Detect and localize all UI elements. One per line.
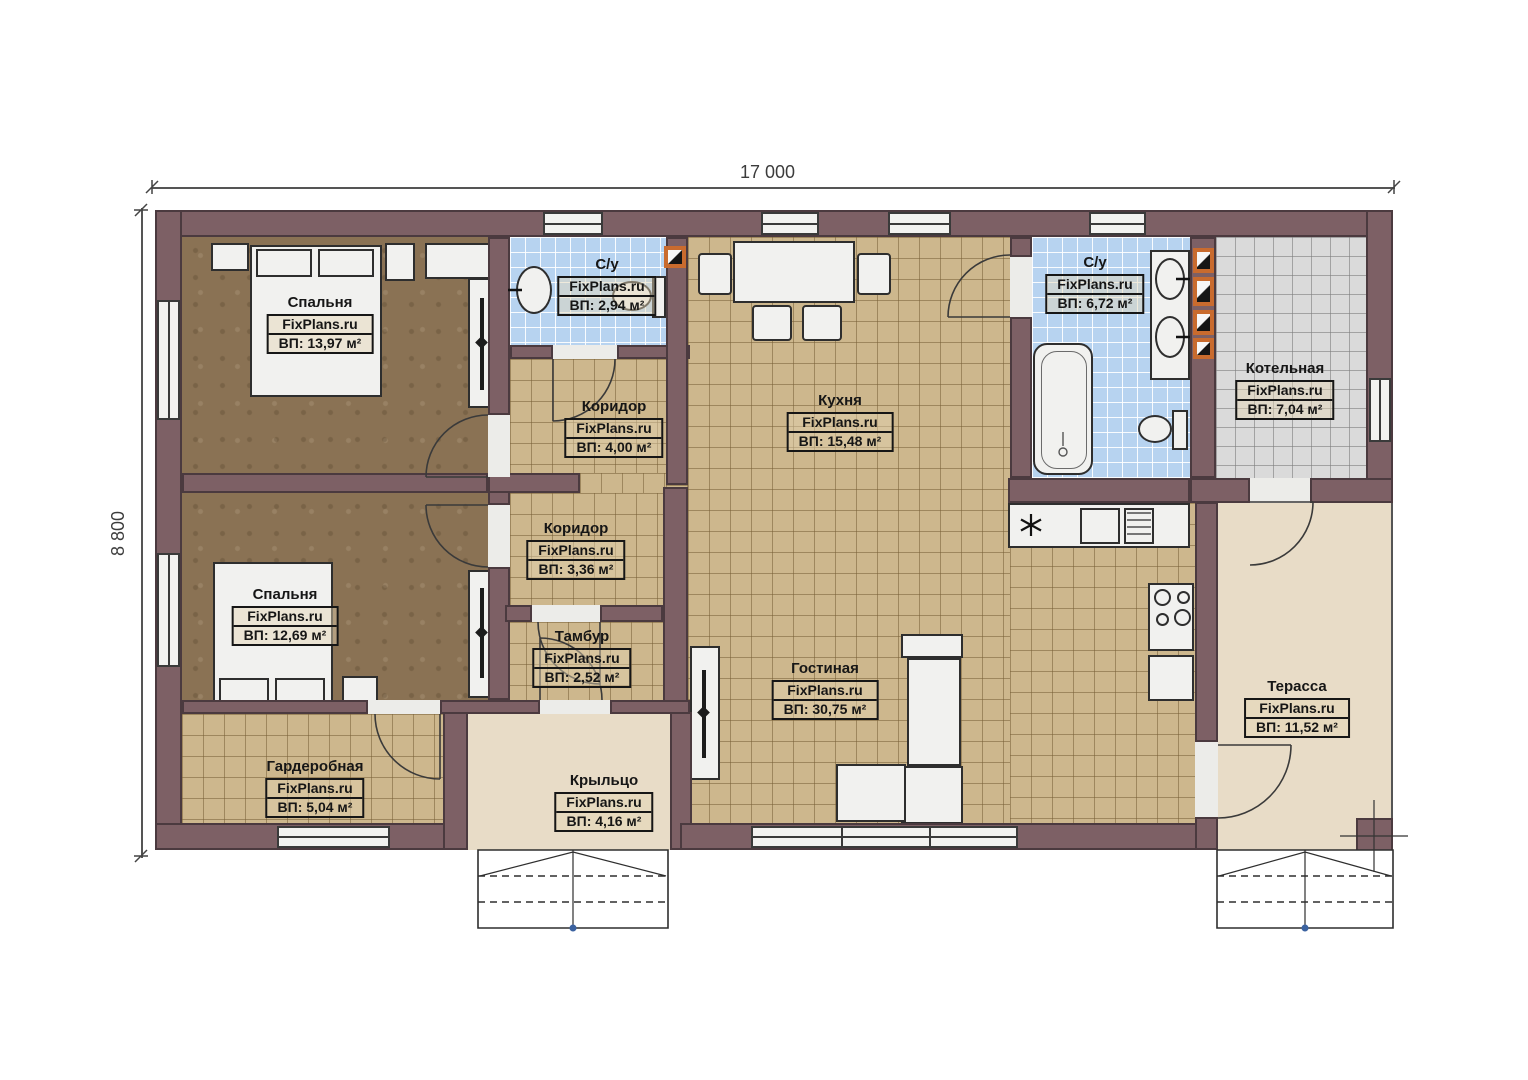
room-name: Гардеробная [265, 758, 364, 775]
burner [1177, 591, 1190, 604]
door-opening [488, 505, 510, 567]
window [277, 826, 390, 848]
terrace-steps [1217, 850, 1393, 932]
room-name: Гостиная [772, 660, 879, 677]
room-label-terrace: Терасса FixPlans.ru ВП: 11,52 м² [1244, 678, 1350, 738]
dimension-line-top [152, 187, 1395, 189]
room-name: Терасса [1244, 678, 1350, 695]
watermark-text: FixPlans.ru [534, 650, 629, 669]
room-label-kitchen: Кухня FixPlans.ru ВП: 15,48 м² [787, 392, 894, 452]
wall-vestibule-south [610, 700, 690, 714]
window-mullion [841, 828, 843, 846]
watermark-area-box: FixPlans.ru ВП: 4,00 м² [564, 418, 663, 458]
watermark-area-box: FixPlans.ru ВП: 6,72 м² [1045, 274, 1144, 314]
washbasin [1155, 316, 1185, 358]
window [157, 553, 180, 667]
room-name: Котельная [1235, 360, 1334, 377]
watermark-area-box: FixPlans.ru ВП: 11,52 м² [1244, 698, 1350, 738]
watermark-text: FixPlans.ru [528, 542, 623, 561]
pillow [318, 249, 374, 277]
sofa-body [907, 658, 961, 766]
door-opening [532, 605, 600, 622]
watermark-text: FixPlans.ru [234, 608, 337, 627]
chair [857, 253, 891, 295]
room-name: Тамбур [532, 628, 631, 645]
watermark-area-box: FixPlans.ru ВП: 2,52 м² [532, 648, 631, 688]
room-label-living: Гостиная FixPlans.ru ВП: 30,75 м² [772, 660, 879, 720]
room-area: ВП: 4,16 м² [556, 813, 651, 830]
room-area: ВП: 6,72 м² [1047, 295, 1142, 312]
cabinet [425, 243, 497, 279]
burner [1154, 589, 1171, 606]
watermark-area-box: FixPlans.ru ВП: 7,04 м² [1235, 380, 1334, 420]
toilet-bowl [1138, 415, 1172, 443]
room-name: Коридор [526, 520, 625, 537]
room-name: Спальня [232, 586, 339, 603]
door-opening [1195, 742, 1218, 817]
door-opening [553, 345, 617, 359]
room-area: ВП: 11,52 м² [1246, 719, 1348, 736]
room-area: ВП: 15,48 м² [789, 433, 892, 450]
dining-table [733, 241, 855, 303]
watermark-area-box: FixPlans.ru ВП: 12,69 м² [232, 606, 339, 646]
vent-block-icon [664, 246, 686, 268]
kitchen-living-floor [688, 237, 1010, 823]
sofa-armrest [901, 634, 963, 658]
watermark-text: FixPlans.ru [774, 682, 877, 701]
dimension-height: 8 800 [108, 511, 129, 556]
room-label-bedroom2: Спальня FixPlans.ru ВП: 12,69 м² [232, 586, 339, 646]
wall-vestibule-living [663, 487, 688, 712]
watermark-text: FixPlans.ru [556, 794, 651, 813]
wall-between-bedrooms [182, 473, 488, 493]
wall-corridor-kitchen [666, 237, 688, 485]
room-area: ВП: 2,94 м² [559, 297, 654, 314]
vent-block-icon [1193, 277, 1214, 306]
wall-porch-left [443, 712, 468, 850]
watermark-text: FixPlans.ru [1047, 276, 1142, 295]
room-name: Коридор [564, 398, 663, 415]
watermark-text: FixPlans.ru [566, 420, 661, 439]
room-label-bathroom2: С/у FixPlans.ru ВП: 6,72 м² [1045, 254, 1144, 314]
room-label-vestibule: Тамбур FixPlans.ru ВП: 2,52 м² [532, 628, 631, 688]
wall-bedroom2-south [440, 700, 540, 714]
wall-bath2-west [1010, 317, 1032, 478]
door-opening [488, 415, 510, 477]
wall-bedrooms-corridor [488, 237, 510, 415]
watermark-area-box: FixPlans.ru ВП: 13,97 м² [267, 314, 374, 354]
terrace-corner-pier [1356, 818, 1393, 852]
window [543, 212, 603, 235]
room-name: С/у [557, 256, 656, 273]
pillow [256, 249, 312, 277]
watermark-area-box: FixPlans.ru ВП: 15,48 м² [787, 412, 894, 452]
room-area: ВП: 12,69 м² [234, 627, 337, 644]
room-area: ВП: 30,75 м² [774, 701, 877, 718]
vent-block-icon [1193, 338, 1214, 359]
watermark-area-box: FixPlans.ru ВП: 5,04 м² [265, 778, 364, 818]
watermark-text: FixPlans.ru [1246, 700, 1348, 719]
burner [1174, 609, 1191, 626]
window [761, 212, 819, 235]
window [1089, 212, 1146, 235]
wall-vestibule-north [505, 605, 532, 622]
wall-living-terrace [1195, 502, 1218, 742]
washbasin [1155, 258, 1185, 300]
watermark-area-box: FixPlans.ru ВП: 4,16 м² [554, 792, 653, 832]
step-marker-icon [570, 925, 577, 932]
watermark-area-box: FixPlans.ru ВП: 30,75 м² [772, 680, 879, 720]
room-label-wardrobe: Гардеробная FixPlans.ru ВП: 5,04 м² [265, 758, 364, 818]
wall-bedrooms-corridor [488, 567, 510, 700]
bathtub-inner [1041, 351, 1087, 469]
burner [1156, 613, 1169, 626]
chair [752, 305, 792, 341]
wall-kitchen-south [1008, 478, 1190, 503]
door-opening [1010, 257, 1032, 317]
washbasin [516, 266, 552, 314]
watermark-area-box: FixPlans.ru ВП: 3,36 м² [526, 540, 625, 580]
nightstand [385, 243, 415, 281]
coffee-table [836, 764, 906, 822]
floor-plan-canvas: 17 000 8 800 [0, 0, 1528, 1080]
watermark-text: FixPlans.ru [559, 278, 654, 297]
watermark-area-box: FixPlans.ru ВП: 2,94 м² [557, 276, 656, 316]
wall-bath1-south [510, 345, 553, 359]
vent-block-icon [1193, 248, 1214, 273]
wall-living-terrace [1195, 817, 1218, 850]
room-area: ВП: 4,00 м² [566, 439, 661, 456]
room-label-porch: Крыльцо FixPlans.ru ВП: 4,16 м² [554, 772, 653, 832]
porch-steps [478, 850, 668, 932]
room-name: С/у [1045, 254, 1144, 271]
chair [802, 305, 842, 341]
room-label-bedroom1: Спальня FixPlans.ru ВП: 13,97 м² [267, 294, 374, 354]
vent-block-icon [1193, 310, 1214, 335]
watermark-text: FixPlans.ru [1237, 382, 1332, 401]
step-marker-icon [1302, 925, 1309, 932]
wall-vestibule-north [600, 605, 663, 622]
wall-exterior-right [1366, 210, 1393, 502]
window [1369, 378, 1391, 442]
room-area: ВП: 2,52 м² [534, 669, 629, 686]
toilet-tank [1172, 410, 1188, 450]
sofa-chaise [901, 766, 963, 824]
door-opening [1250, 478, 1310, 503]
window [157, 300, 180, 420]
room-label-corridor2: Коридор FixPlans.ru ВП: 3,36 м² [526, 520, 625, 580]
window-wide [751, 826, 1018, 848]
kitchen-sink-unit [1080, 508, 1120, 544]
dimension-line-left [141, 208, 143, 858]
room-label-bathroom1: С/у FixPlans.ru ВП: 2,94 м² [557, 256, 656, 316]
window [888, 212, 951, 235]
watermark-text: FixPlans.ru [789, 414, 892, 433]
corridor-opening-floor [580, 473, 666, 493]
room-area: ВП: 5,04 м² [267, 799, 362, 816]
fridge [1148, 655, 1194, 701]
door-opening [368, 700, 440, 714]
wall-boiler-south [1310, 478, 1393, 503]
room-name: Спальня [267, 294, 374, 311]
door-opening [540, 700, 610, 714]
room-label-boiler: Котельная FixPlans.ru ВП: 7,04 м² [1235, 360, 1334, 420]
wall-bedroom2-south [182, 700, 368, 714]
watermark-text: FixPlans.ru [267, 780, 362, 799]
boiler-floor [1216, 237, 1366, 478]
sink-drainer [1124, 508, 1154, 544]
room-area: ВП: 13,97 м² [269, 335, 372, 352]
chair [698, 253, 732, 295]
room-area: ВП: 7,04 м² [1237, 401, 1332, 418]
window-mullion [929, 828, 931, 846]
watermark-text: FixPlans.ru [269, 316, 372, 335]
terrace-floor [1218, 502, 1393, 850]
nightstand [211, 243, 249, 271]
wall-bath2-west [1010, 237, 1032, 257]
room-name: Кухня [787, 392, 894, 409]
wall-boiler-south [1190, 478, 1250, 503]
room-label-corridor1: Коридор FixPlans.ru ВП: 4,00 м² [564, 398, 663, 458]
dimension-width: 17 000 [740, 162, 795, 183]
room-name: Крыльцо [554, 772, 653, 789]
room-area: ВП: 3,36 м² [528, 561, 623, 578]
